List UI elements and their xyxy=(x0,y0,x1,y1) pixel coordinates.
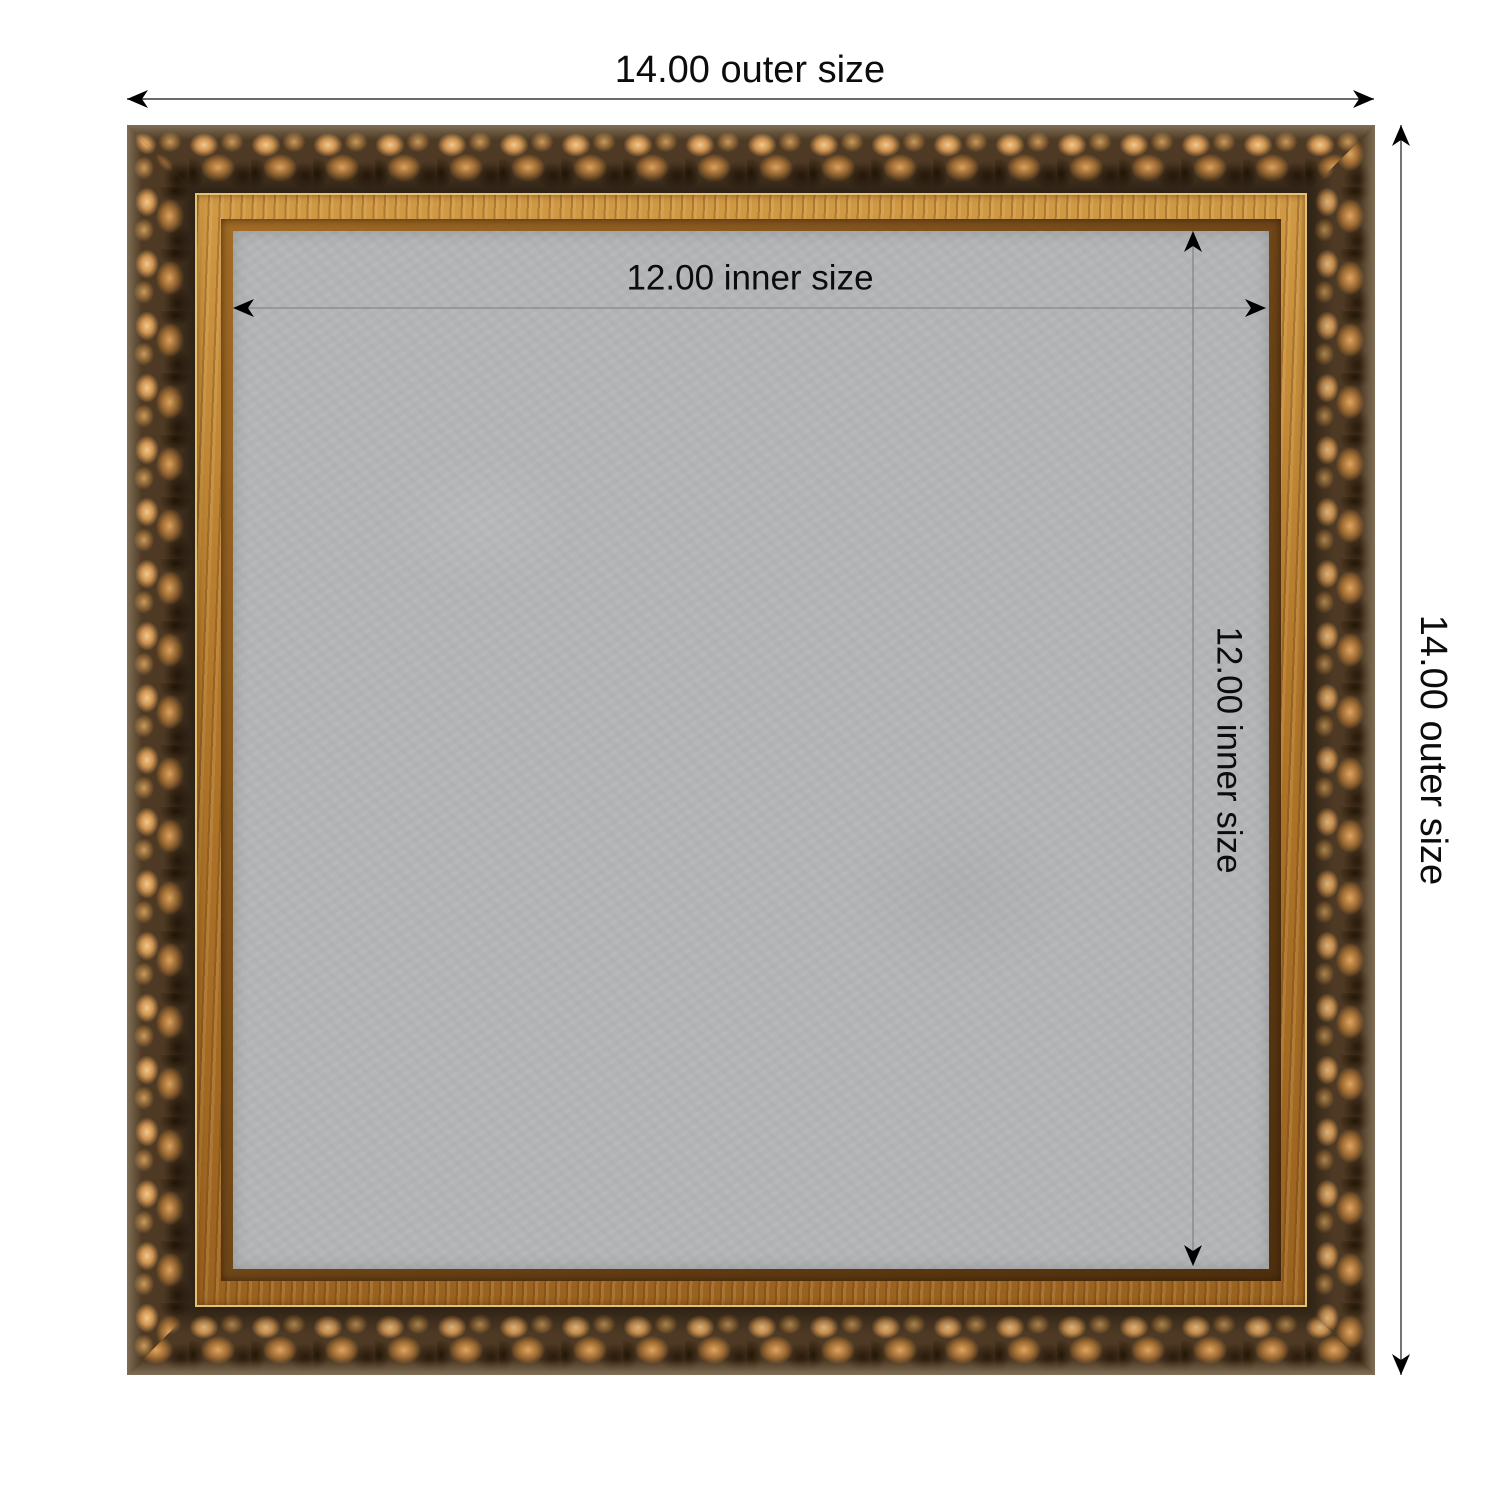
picture-frame xyxy=(127,125,1375,1375)
arrow-up-icon xyxy=(1392,125,1410,146)
frame-dimension-diagram: 14.00 outer size 14.00 outer size 12.00 … xyxy=(0,0,1500,1500)
arrow-down-icon xyxy=(1392,1354,1410,1375)
frame-ornate-border-right xyxy=(1307,125,1375,1375)
inner-width-label: 12.00 inner size xyxy=(626,261,873,296)
frame-gray-backing xyxy=(233,231,1269,1269)
frame-ornate-border-bottom xyxy=(127,1307,1375,1375)
frame-ornate-border-left xyxy=(127,125,195,1375)
arrow-right-icon xyxy=(1353,90,1374,108)
arrow-left-icon xyxy=(127,90,148,108)
outer-height-label: 14.00 outer size xyxy=(1414,615,1452,885)
outer-width-label: 14.00 outer size xyxy=(615,51,885,89)
inner-height-label: 12.00 inner size xyxy=(1212,626,1247,873)
frame-ornate-border-top xyxy=(127,125,1375,193)
